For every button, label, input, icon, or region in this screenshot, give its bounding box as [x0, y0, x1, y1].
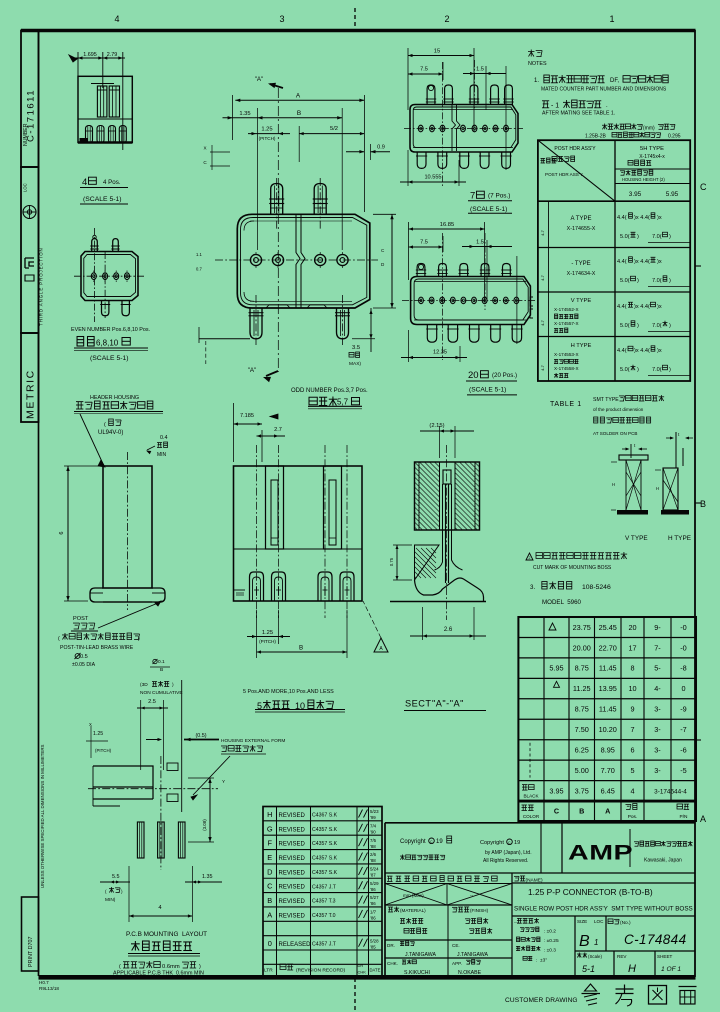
svg-text:CHK.: CHK.: [387, 961, 398, 966]
svg-text:17: 17: [628, 643, 636, 652]
svg-text:HEADER HOUSING: HEADER HOUSING: [90, 395, 139, 401]
svg-text:2: 2: [444, 14, 449, 24]
svg-text:4-7: 4-7: [540, 274, 545, 281]
svg-text:(MATERIAL): (MATERIAL): [400, 908, 426, 913]
svg-text:C: C: [554, 807, 559, 816]
svg-text:'86: '86: [370, 887, 376, 892]
svg-text:: ±0.2: : ±0.2: [544, 929, 556, 935]
svg-text:1.25 P-P CONNECTOR (B-TO-B): 1.25 P-P CONNECTOR (B-TO-B): [528, 887, 653, 897]
svg-text:REV: REV: [617, 954, 627, 959]
svg-text:)x: )x: [657, 215, 662, 221]
svg-text:2.79: 2.79: [107, 52, 118, 58]
svg-text:'90: '90: [370, 829, 376, 834]
svg-text:REVISED: REVISED: [279, 856, 306, 862]
svg-text:-0: -0: [680, 643, 687, 652]
svg-text:H: H: [628, 963, 636, 975]
svg-text:19: 19: [436, 839, 443, 845]
svg-text:22.70: 22.70: [599, 643, 617, 652]
svg-text:(3.08): (3.08): [202, 819, 207, 831]
svg-text:0.75: 0.75: [389, 557, 394, 566]
svg-text:(20 Pos.): (20 Pos.): [492, 372, 517, 379]
svg-text:6: 6: [59, 531, 65, 534]
svg-text:THIRD ANGLE PROJECTION: THIRD ANGLE PROJECTION: [39, 247, 44, 326]
svg-text:5-: 5-: [654, 664, 661, 673]
svg-text:UL94V-0): UL94V-0): [98, 430, 123, 436]
svg-text:4.4(: 4.4(: [617, 215, 627, 221]
svg-text:)x 4.4(: )x 4.4(: [634, 215, 650, 221]
svg-text:): ): [669, 367, 671, 373]
svg-text:S.KIKUCHI: S.KIKUCHI: [404, 970, 430, 976]
svg-text:C: C: [508, 841, 511, 845]
svg-text:HOUSING HEIGHT (2): HOUSING HEIGHT (2): [622, 177, 665, 182]
svg-text:4: 4: [630, 786, 634, 795]
svg-text:MATED COUNTER PART NUMBER AND: MATED COUNTER PART NUMBER AND DIMENSIONS: [541, 87, 667, 93]
svg-text:C: C: [700, 182, 707, 192]
svg-text:5/29: 5/29: [370, 881, 379, 886]
svg-text:9: 9: [630, 705, 634, 714]
svg-text:AT SOLDER ON PCB: AT SOLDER ON PCB: [593, 431, 638, 436]
svg-text:CUT MARK OF MOUNTING BOSS: CUT MARK OF MOUNTING BOSS: [533, 565, 612, 571]
svg-text:"A": "A": [248, 367, 257, 374]
svg-text:0.4: 0.4: [160, 435, 168, 441]
svg-text:3-: 3-: [654, 725, 661, 734]
svg-text:POST HDR ASS'Y: POST HDR ASS'Y: [545, 172, 583, 177]
svg-text:1/7: 1/7: [370, 910, 377, 915]
svg-text:): ): [669, 278, 671, 284]
svg-text:DATE: DATE: [370, 968, 381, 973]
svg-text:7: 7: [630, 725, 634, 734]
svg-text:B: B: [579, 933, 590, 950]
svg-text:0: 0: [268, 939, 272, 948]
svg-text:6: 6: [630, 746, 634, 755]
svg-text:6.45: 6.45: [601, 786, 615, 795]
svg-text:(: (: [58, 636, 60, 642]
svg-text:SMT TYPE: SMT TYPE: [593, 397, 619, 403]
svg-text:SHEET: SHEET: [657, 954, 673, 959]
svg-text:: ±3°: : ±3°: [536, 958, 547, 964]
svg-text:MIN: MIN: [157, 452, 167, 458]
svg-text:7.50: 7.50: [575, 725, 589, 734]
svg-text:Kawasaki, Japan: Kawasaki, Japan: [644, 858, 682, 864]
svg-text:9-: 9-: [654, 623, 661, 632]
svg-text:2/6: 2/6: [370, 852, 377, 857]
svg-text:2.7: 2.7: [274, 427, 282, 433]
svg-text:(NAME): (NAME): [526, 878, 543, 884]
svg-text:A: A: [700, 814, 706, 824]
svg-text:REVISED: REVISED: [279, 885, 306, 891]
svg-text:H0.7: H0.7: [39, 980, 49, 985]
svg-text:mm (Max): mm (Max): [403, 893, 424, 898]
svg-text:10.20: 10.20: [599, 725, 617, 734]
svg-text:4-7: 4-7: [540, 319, 545, 326]
svg-text:SECT: SECT: [405, 699, 432, 709]
svg-text:E: E: [267, 853, 272, 862]
svg-text:3-174644-4: 3-174644-4: [654, 788, 687, 795]
svg-text:(No.): (No.): [620, 920, 631, 926]
svg-text:7.5: 7.5: [420, 67, 428, 73]
svg-text:A: A: [605, 807, 610, 816]
svg-text:Y: Y: [222, 779, 225, 784]
svg-text:C4357 S.K: C4357 S.K: [312, 827, 338, 833]
svg-text:J.TANIGAWA: J.TANIGAWA: [457, 952, 488, 958]
svg-text:12.35: 12.35: [433, 350, 447, 356]
svg-text:DR: DR: [358, 963, 364, 968]
svg-text:R9L13/18: R9L13/18: [39, 986, 59, 991]
svg-text:4.4(: 4.4(: [617, 348, 627, 354]
svg-text:8: 8: [630, 664, 634, 673]
svg-text:'99: '99: [370, 815, 376, 820]
svg-text:0.5: 0.5: [80, 654, 88, 660]
svg-text:REVISED: REVISED: [279, 827, 306, 833]
svg-text:POST: POST: [73, 616, 89, 622]
svg-text:Pos.: Pos.: [628, 814, 638, 820]
svg-text:): ): [637, 367, 639, 373]
svg-text:REVISED: REVISED: [279, 842, 306, 848]
svg-text:): ): [138, 636, 140, 642]
svg-text:AFTER MATING SEE TABLE 1.: AFTER MATING SEE TABLE 1.: [542, 111, 615, 117]
svg-text:4 Pos.: 4 Pos.: [103, 179, 121, 186]
svg-text:6,8,10: 6,8,10: [96, 339, 119, 348]
svg-text:DF,: DF,: [610, 78, 619, 84]
svg-text:(SCALE 5-1): (SCALE 5-1): [470, 206, 507, 213]
svg-text:7.5: 7.5: [420, 240, 428, 246]
svg-text:(PITCH): (PITCH): [95, 748, 112, 753]
svg-text:7.70: 7.70: [601, 766, 615, 775]
svg-text:1: 1: [609, 14, 614, 24]
svg-text:5.95: 5.95: [666, 191, 679, 198]
svg-text:25.45: 25.45: [599, 623, 617, 632]
svg-text:V TYPE: V TYPE: [625, 535, 648, 542]
svg-text:5.0(: 5.0(: [620, 323, 630, 329]
svg-text:7: 7: [470, 191, 475, 202]
svg-text:3.75: 3.75: [575, 786, 589, 795]
svg-text:(2.15): (2.15): [429, 423, 444, 429]
svg-text:REVISED: REVISED: [279, 870, 306, 876]
svg-text:15: 15: [434, 49, 440, 55]
svg-text:EVEN NUMBER Pos.6,8,10 Pos.: EVEN NUMBER Pos.6,8,10 Pos.: [71, 327, 150, 333]
svg-text:11.25: 11.25: [573, 684, 591, 693]
svg-text:'88: '88: [370, 844, 376, 849]
svg-text:A: A: [296, 92, 301, 99]
svg-text:5.5: 5.5: [112, 874, 120, 880]
svg-text:23.75: 23.75: [573, 623, 591, 632]
svg-text:5.95: 5.95: [549, 664, 563, 673]
svg-text:'85: '85: [370, 944, 376, 949]
svg-text:METRIC: METRIC: [25, 369, 37, 419]
svg-text:)x: )x: [657, 348, 662, 354]
svg-text:): ): [637, 323, 639, 329]
svg-text:8.75: 8.75: [575, 664, 589, 673]
svg-text:5H TYPE: 5H TYPE: [640, 146, 664, 152]
svg-text:1.: 1.: [534, 78, 539, 84]
svg-text:"A"-"A": "A"-"A": [432, 699, 464, 709]
svg-text:)x: )x: [657, 259, 662, 265]
svg-text:5/2: 5/2: [330, 126, 338, 132]
svg-text:-7: -7: [680, 725, 687, 734]
svg-text:1.25: 1.25: [261, 127, 272, 133]
svg-text:NON CUMULATIVE: NON CUMULATIVE: [140, 690, 183, 696]
svg-text:4-7: 4-7: [540, 364, 545, 371]
svg-text:(FINISH): (FINISH): [470, 908, 489, 913]
svg-text:7/4: 7/4: [370, 823, 377, 828]
svg-text:5/24: 5/24: [370, 867, 379, 872]
svg-text:1.25B-2B: 1.25B-2B: [585, 134, 607, 140]
svg-text:X-174557-X: X-174557-X: [554, 321, 579, 326]
svg-text:V TYPE: V TYPE: [571, 298, 592, 304]
svg-text:'87: '87: [370, 873, 376, 878]
svg-text:(PITCH): (PITCH): [259, 136, 276, 141]
svg-text:7/5: 7/5: [370, 838, 377, 843]
svg-text:5/27: 5/27: [370, 895, 379, 900]
svg-text:B: B: [579, 807, 584, 816]
svg-text:5.00: 5.00: [575, 766, 589, 775]
svg-text:X-174553-X: X-174553-X: [554, 352, 579, 357]
svg-text:CE.: CE.: [452, 943, 460, 948]
svg-text:APP.: APP.: [452, 961, 462, 966]
svg-text:): ): [669, 323, 671, 329]
svg-text:16.85: 16.85: [440, 222, 455, 228]
svg-text:A: A: [267, 910, 272, 919]
svg-text:4.4(: 4.4(: [617, 259, 627, 265]
svg-text:1.5: 1.5: [476, 67, 484, 73]
svg-text:1.35: 1.35: [239, 111, 250, 117]
svg-text:G: G: [267, 824, 273, 833]
svg-text:B: B: [297, 110, 301, 117]
svg-text:(REVISION RECORD): (REVISION RECORD): [296, 968, 346, 974]
svg-text:5 Pos.AND MORE,10 Pos.AND LESS: 5 Pos.AND MORE,10 Pos.AND LESS: [243, 689, 334, 695]
svg-text:-6: -6: [680, 746, 687, 755]
svg-text:)x 4.4(: )x 4.4(: [634, 348, 650, 354]
svg-text:REVISED: REVISED: [279, 813, 306, 819]
svg-text:UNLESS OTHERWISE SPECIFIED ALL: UNLESS OTHERWISE SPECIFIED ALL DIMENSION…: [40, 744, 45, 888]
svg-text:): ): [669, 234, 671, 240]
svg-text:4-: 4-: [654, 684, 661, 693]
svg-text:1 OF 1: 1 OF 1: [661, 966, 681, 973]
svg-text:H TYPE: H TYPE: [571, 343, 592, 349]
svg-text:X-1745x4-x: X-1745x4-x: [639, 154, 665, 160]
svg-text:TABLE 1: TABLE 1: [550, 401, 582, 408]
svg-text:(0.5): (0.5): [195, 733, 206, 739]
svg-text:(PITCH): (PITCH): [259, 639, 276, 644]
svg-text:J.TANIGAWA: J.TANIGAWA: [405, 952, 436, 958]
svg-text:MIN): MIN): [105, 897, 116, 903]
svg-text:(3D: (3D: [140, 682, 148, 688]
svg-text:7-: 7-: [654, 643, 661, 652]
svg-text:LOC: LOC: [594, 919, 604, 924]
svg-text:(mm): (mm): [643, 126, 655, 132]
svg-text:NOTES: NOTES: [528, 61, 547, 67]
svg-text:'86: '86: [370, 916, 376, 921]
svg-text:8.95: 8.95: [601, 746, 615, 755]
svg-text:11.45: 11.45: [599, 664, 617, 673]
svg-text:11.45: 11.45: [599, 705, 617, 714]
svg-text:-5: -5: [680, 766, 687, 775]
svg-text:- 1: - 1: [551, 103, 559, 110]
svg-text:C4367 S.K: C4367 S.K: [312, 813, 338, 819]
svg-text:CUSTOMER DRAWING: CUSTOMER DRAWING: [505, 997, 578, 1004]
svg-text:C: C: [430, 840, 433, 844]
svg-text:(: (: [119, 964, 121, 970]
svg-text:C4357 J.T: C4357 J.T: [312, 942, 337, 948]
svg-text:0: 0: [681, 684, 685, 693]
svg-text:(Scale): (Scale): [588, 954, 602, 959]
svg-text:C: C: [267, 882, 273, 891]
svg-text:108-5246: 108-5246: [582, 584, 611, 591]
svg-text:7.0(: 7.0(: [652, 323, 662, 329]
svg-text:-0: -0: [680, 623, 687, 632]
svg-text:3-: 3-: [654, 746, 661, 755]
svg-text:B: B: [299, 645, 303, 652]
svg-text:20: 20: [468, 370, 479, 381]
svg-text:DR.: DR.: [387, 943, 395, 948]
svg-text:10: 10: [628, 684, 636, 693]
svg-text:13.95: 13.95: [599, 684, 617, 693]
svg-text:H: H: [612, 482, 615, 487]
svg-text:8.75: 8.75: [575, 705, 589, 714]
svg-text:4.4(: 4.4(: [617, 304, 627, 310]
svg-text:6.25: 6.25: [575, 746, 589, 755]
svg-text:): ): [637, 234, 639, 240]
svg-text:COLOR: COLOR: [523, 814, 540, 819]
svg-text:B: B: [267, 896, 272, 905]
svg-text:H: H: [267, 810, 272, 819]
svg-text:B: B: [700, 499, 706, 509]
svg-text:5.0(: 5.0(: [620, 234, 630, 240]
svg-text:C4357 T.3: C4357 T.3: [312, 899, 336, 905]
svg-text:0.6mm: 0.6mm: [162, 964, 180, 970]
svg-text:AMP: AMP: [568, 841, 633, 865]
svg-text:0.1: 0.1: [158, 659, 165, 665]
svg-text:4: 4: [114, 14, 119, 24]
svg-text:B: B: [160, 667, 163, 673]
svg-text:4: 4: [82, 177, 87, 188]
svg-text:MAX): MAX): [349, 361, 361, 367]
svg-text:PRINT D707: PRINT D707: [28, 937, 34, 967]
svg-text:C4357 S.K: C4357 S.K: [312, 856, 338, 862]
svg-text:(SCALE 5-1): (SCALE 5-1): [90, 355, 129, 362]
svg-text:'88: '88: [370, 858, 376, 863]
svg-text:20.00: 20.00: [573, 643, 591, 652]
svg-text:P/N: P/N: [680, 814, 689, 820]
svg-text:5/23: 5/23: [370, 809, 379, 814]
svg-text:3-: 3-: [654, 766, 661, 775]
svg-text:3: 3: [279, 14, 284, 24]
svg-text:by AMP (Japan), Ltd.: by AMP (Japan), Ltd.: [485, 850, 532, 856]
svg-text:C4357 J.T: C4357 J.T: [312, 884, 337, 890]
svg-text:2.5: 2.5: [148, 699, 156, 705]
svg-text:2: 2: [529, 556, 531, 560]
svg-text:5.0(: 5.0(: [620, 278, 630, 284]
svg-text:±0.05 DIA: ±0.05 DIA: [72, 662, 96, 668]
svg-text:5.0(: 5.0(: [620, 367, 630, 373]
svg-text:All Rights Reserved.: All Rights Reserved.: [483, 858, 528, 864]
svg-text:0.9: 0.9: [377, 145, 385, 151]
svg-text:1: 1: [594, 938, 598, 947]
svg-text:C4357 S.K: C4357 S.K: [312, 870, 338, 876]
svg-text:20: 20: [628, 623, 636, 632]
svg-text:: ±0.25: : ±0.25: [544, 938, 559, 944]
svg-text:"A": "A": [255, 76, 264, 83]
svg-text:C-174844: C-174844: [624, 932, 687, 947]
svg-text:POST HDR ASS'Y: POST HDR ASS'Y: [554, 146, 596, 152]
svg-text:--: --: [470, 894, 474, 899]
svg-text:X: X: [203, 146, 206, 151]
svg-text:3.: 3.: [530, 584, 535, 591]
svg-text:1.1: 1.1: [196, 252, 202, 257]
svg-text:5/28: 5/28: [370, 938, 379, 943]
svg-text:X-174634-X: X-174634-X: [567, 271, 596, 277]
svg-text:): ): [637, 278, 639, 284]
svg-text:7.185: 7.185: [240, 413, 254, 419]
svg-text:Copyright: Copyright: [400, 839, 426, 845]
svg-text:7.0(: 7.0(: [652, 234, 662, 240]
svg-text:3.95: 3.95: [549, 786, 563, 795]
svg-text:BLACK: BLACK: [523, 794, 539, 799]
svg-text:LOC: LOC: [23, 183, 28, 192]
svg-text:4-7: 4-7: [540, 229, 545, 236]
svg-text:F: F: [267, 839, 272, 848]
svg-text:N.OKABE: N.OKABE: [458, 970, 482, 976]
svg-text:CHK: CHK: [358, 970, 367, 975]
svg-text:)x 4.4(: )x 4.4(: [634, 304, 650, 310]
svg-text:LTR: LTR: [264, 968, 273, 974]
svg-text:7.0(: 7.0(: [652, 367, 662, 373]
svg-text:3.5: 3.5: [352, 345, 360, 351]
svg-text:(7 Pos.): (7 Pos.): [488, 193, 510, 200]
svg-text:5: 5: [630, 766, 634, 775]
svg-text:7.0(: 7.0(: [652, 278, 662, 284]
svg-text:Copyright: Copyright: [480, 840, 504, 846]
svg-text:5-1: 5-1: [582, 964, 595, 974]
svg-text:1.25: 1.25: [93, 731, 103, 737]
svg-text:H TYPE: H TYPE: [668, 535, 691, 542]
svg-text:APPLICABLE P.C.B THK 0.6mm MI: APPLICABLE P.C.B THK 0.6mm MIN: [113, 971, 204, 977]
svg-text:SIZE: SIZE: [577, 919, 587, 924]
svg-text:C4357 S.K: C4357 S.K: [312, 841, 338, 847]
svg-text:P.C.B MOUNTING LAYOUT: P.C.B MOUNTING LAYOUT: [126, 931, 207, 938]
svg-text:REVISED: REVISED: [279, 899, 306, 905]
svg-text:SINGLE ROW POST HDR ASS'Y SMT: SINGLE ROW POST HDR ASS'Y SMT TYPE WITHO…: [514, 906, 693, 913]
svg-text:ODD NUMBER Pos.3,7 Pos.: ODD NUMBER Pos.3,7 Pos.: [291, 388, 368, 394]
svg-text:A TYPE: A TYPE: [571, 216, 592, 222]
svg-text:10.555: 10.555: [424, 175, 441, 181]
svg-text:D: D: [267, 867, 272, 876]
svg-text:MODEL 5960: MODEL 5960: [542, 599, 582, 606]
svg-text:)x: )x: [657, 304, 662, 310]
svg-text:X-174655-X: X-174655-X: [567, 226, 596, 232]
svg-text:HOUSING EXTERNAL FORM: HOUSING EXTERNAL FORM: [221, 738, 285, 744]
svg-text:RELEASED: RELEASED: [279, 942, 312, 948]
svg-text:REVISED: REVISED: [279, 913, 306, 919]
svg-text:1.35: 1.35: [202, 874, 213, 880]
svg-text:(SCALE 5-1): (SCALE 5-1): [83, 196, 122, 203]
svg-text:)x 4.4(: )x 4.4(: [634, 259, 650, 265]
svg-text:1.25: 1.25: [262, 630, 273, 636]
svg-text:'86: '86: [370, 901, 376, 906]
svg-text:): ): [199, 964, 201, 970]
svg-text:3.95: 3.95: [629, 191, 642, 198]
svg-text:X-174558-X: X-174558-X: [554, 366, 579, 371]
svg-text:C4357 T.0: C4357 T.0: [312, 913, 336, 919]
svg-text:X: X: [89, 722, 92, 727]
svg-text:0.7: 0.7: [196, 267, 202, 272]
svg-text:-9: -9: [680, 705, 687, 714]
svg-text:1.5: 1.5: [476, 240, 484, 246]
svg-text:(: (: [104, 422, 106, 428]
svg-text:1.695: 1.695: [83, 52, 97, 58]
svg-text:- TYPE: - TYPE: [571, 261, 590, 267]
svg-text:3-: 3-: [654, 705, 661, 714]
